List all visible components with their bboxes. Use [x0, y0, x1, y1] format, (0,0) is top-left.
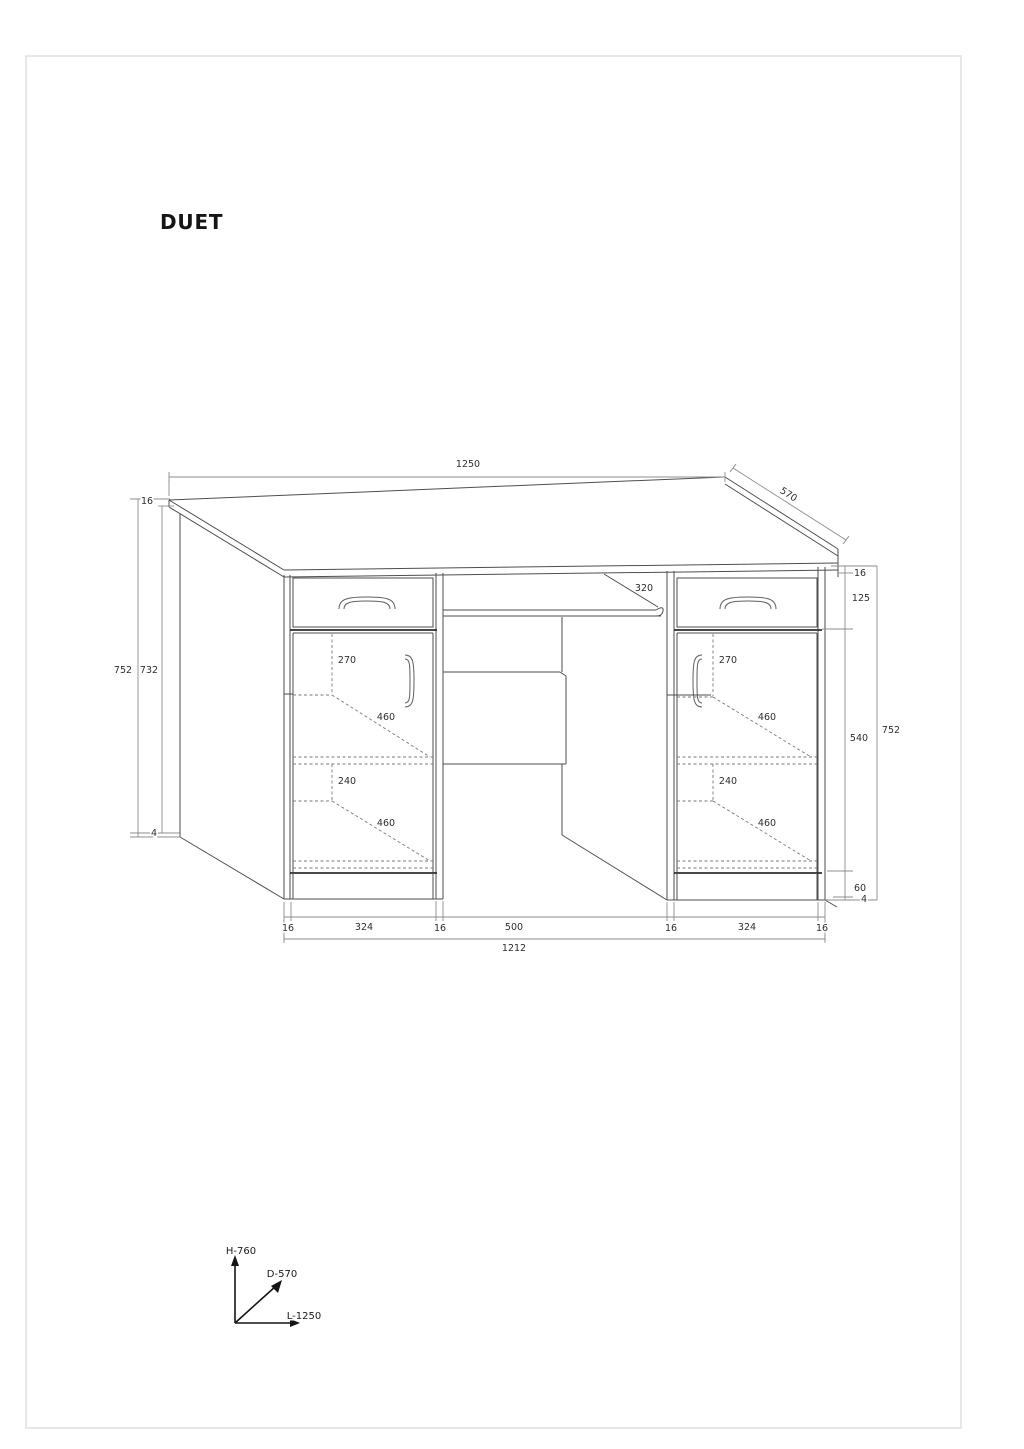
depth-axis-arrow: [235, 1286, 276, 1323]
dim-width-label: 1250: [456, 459, 480, 470]
dim-shelf-depth-label: 460: [377, 818, 395, 829]
dim-tray-depth-label: 320: [635, 583, 653, 594]
dim-bottom-chain: 16 324 16 500 16 324 16 1212: [282, 901, 828, 954]
edge-line: [284, 570, 838, 577]
desk-top: [169, 477, 838, 577]
tick-line: [843, 536, 849, 544]
dim-bottom-overall-label: 1212: [502, 943, 526, 954]
edge-line: [169, 477, 725, 500]
page-title: DUET: [160, 210, 223, 234]
drawer-handle: [725, 601, 771, 609]
dim-shelf-height-label: 240: [338, 776, 356, 787]
left-pedestal: [284, 573, 443, 899]
dim-foot-label: 4: [861, 894, 867, 905]
keyboard-tray-cap: [656, 608, 663, 616]
dim-foot-label: 4: [151, 828, 157, 839]
left-side-panel: [180, 514, 290, 899]
dim-bottom-label: 16: [816, 923, 828, 934]
drawer-front: [677, 578, 817, 627]
arrowhead-icon: [271, 1280, 282, 1293]
dim-shelf-height-label: 270: [719, 655, 737, 666]
edge-line: [169, 500, 284, 570]
dim-shelf-height-label: 270: [338, 655, 356, 666]
dash-line: [713, 697, 811, 757]
axis-length-label: L-1250: [287, 1311, 321, 1322]
axis-height-label: H-760: [226, 1246, 256, 1257]
dim-top-thickness-label: 16: [141, 496, 153, 507]
dash-line: [332, 695, 430, 757]
drawer-handle: [344, 601, 390, 609]
dim-line: [733, 468, 846, 540]
bottom-corner-edge: [825, 900, 837, 907]
technical-drawing: DUET: [0, 0, 1024, 1449]
dim-inner-height-label: 732: [140, 665, 158, 676]
dim-bottom-label: 16: [665, 923, 677, 934]
back-panel-edge: [560, 672, 566, 676]
dim-depth: 570: [730, 464, 849, 544]
dim-drawer-section-label: 125: [852, 593, 870, 604]
axis-indicator: H-760 D-570 L-1250: [226, 1246, 321, 1327]
dim-bottom-label: 324: [355, 922, 373, 933]
dim-top-thickness-label: 16: [854, 568, 866, 579]
center-section: 320: [443, 574, 667, 900]
right-pedestal-shelves: 270 460 240 460: [677, 634, 817, 868]
dim-shelf-depth-label: 460: [758, 712, 776, 723]
dim-shelf-depth-label: 460: [377, 712, 395, 723]
drawer-front: [293, 578, 433, 627]
edge-line: [284, 563, 838, 570]
edge-line: [180, 837, 284, 899]
dim-depth-label: 570: [778, 485, 799, 504]
tick-line: [730, 464, 736, 472]
dim-top-width: 1250: [169, 459, 725, 496]
drawing-sheet: DUET: [0, 0, 1024, 1449]
dim-shelf-depth-label: 460: [758, 818, 776, 829]
door-handle: [697, 659, 702, 703]
dim-right-chain: 16 125 540 752 60 4: [822, 566, 900, 905]
dash-line: [332, 801, 430, 861]
dim-bottom-label: 16: [282, 923, 294, 934]
dim-bottom-label: 16: [434, 923, 446, 934]
page-border: [26, 56, 961, 1428]
dim-shelf-height-label: 240: [719, 776, 737, 787]
dim-door-section-label: 540: [850, 733, 868, 744]
door-handle: [405, 659, 410, 703]
right-pedestal: [667, 567, 837, 907]
dim-overall-height-label: 752: [882, 725, 900, 736]
dash-line: [713, 801, 811, 861]
dim-left-chain: 16 752 732 4: [114, 496, 181, 839]
dim-bottom-label: 500: [505, 922, 523, 933]
left-pedestal-shelves: 270 460 240 460: [293, 634, 433, 868]
edge-line: [169, 507, 284, 577]
axis-depth-label: D-570: [267, 1269, 297, 1280]
inner-floor-edge: [562, 835, 667, 900]
dim-plinth-label: 60: [854, 883, 866, 894]
dim-bottom-label: 324: [738, 922, 756, 933]
dim-overall-height-label: 752: [114, 665, 132, 676]
